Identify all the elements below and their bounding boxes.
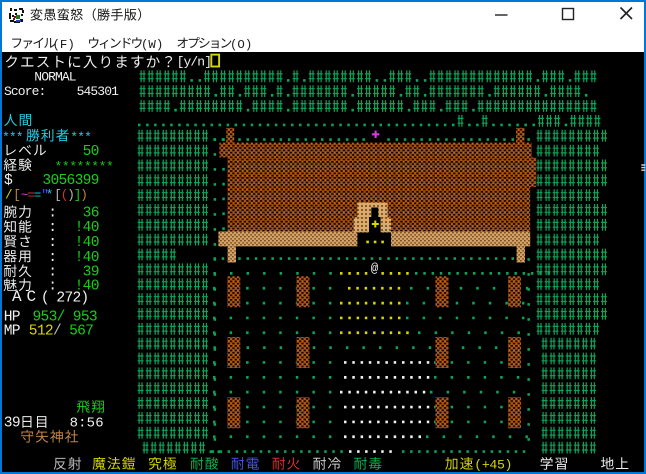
svg-text::: : [48,279,56,295]
svg-text::: : [48,250,56,266]
svg-text:545301: 545301 [77,84,120,99]
svg-text:): ) [80,291,88,307]
svg-text:(W): (W) [141,38,163,52]
svg-text:C: C [27,288,36,306]
svg-text:MP: MP [4,323,20,339]
svg-text:A: A [12,288,22,306]
svg-text:$: $ [4,173,13,189]
svg-text::: : [48,235,56,251]
svg-text:512/ 567: 512/ 567 [29,323,93,339]
svg-text:!40: !40 [75,250,99,266]
svg-text:): ) [80,189,87,203]
svg-text:[: [ [13,189,20,203]
svg-text::: : [48,220,56,236]
svg-text::: : [48,205,56,221]
svg-text:36: 36 [75,205,99,221]
svg-text:272: 272 [56,291,80,307]
svg-text:***: *** [70,130,91,145]
svg-text:8:56: 8:56 [70,415,104,431]
svg-text:Score:: Score: [4,84,45,99]
svg-text:3056399: 3056399 [42,173,98,189]
svg-text:39: 39 [4,415,20,431]
svg-text:!40: !40 [75,235,99,251]
svg-text:NORMAL: NORMAL [34,69,76,84]
svg-text:[y/n]: [y/n] [177,55,212,70]
svg-text:@: @ [371,262,379,276]
svg-text:/: / [5,189,12,203]
svg-text:50: 50 [83,144,99,160]
svg-text:(: ( [41,291,49,307]
svg-text:***: *** [2,130,23,145]
svg-text:!40: !40 [75,220,99,236]
svg-text:(O): (O) [230,38,252,52]
svg-text:(F): (F) [53,38,75,52]
svg-text:=: = [34,189,41,203]
svg-text:(+45): (+45) [474,457,512,472]
svg-text:*: * [46,189,53,203]
